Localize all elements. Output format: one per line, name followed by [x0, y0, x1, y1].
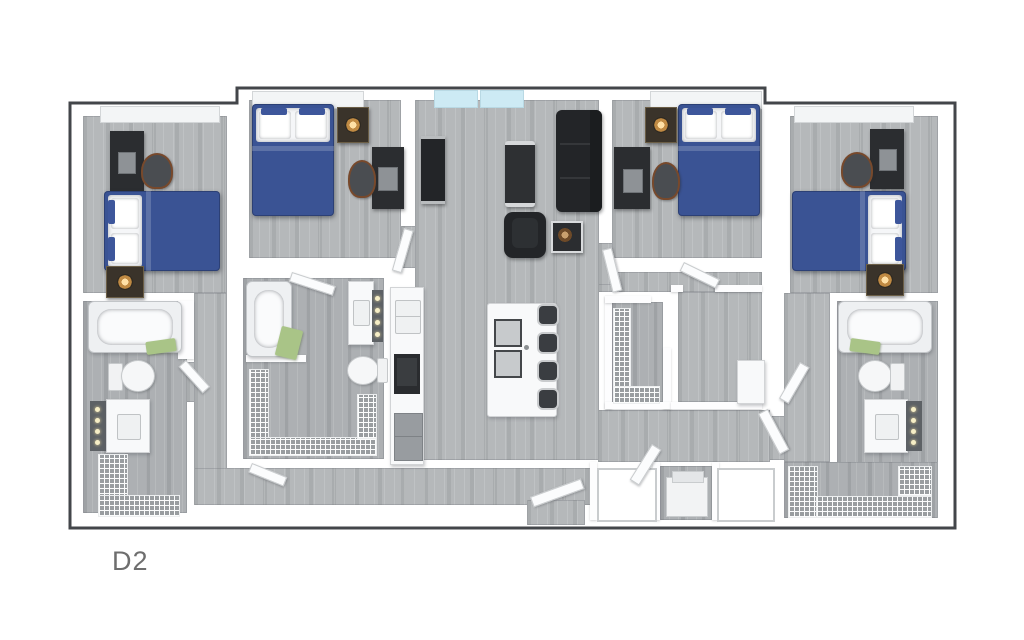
vanity-light [95, 407, 100, 412]
bathroom-2-toilet-tank [377, 358, 388, 383]
living-room-window-right [480, 90, 524, 108]
closet-4-wire-shelf-b [816, 496, 932, 518]
kitchen-counter [390, 287, 424, 465]
closet-4-wire-shelf-c [898, 466, 932, 496]
sink-divider [396, 316, 420, 317]
bar-stool [539, 306, 557, 324]
vanity-light [911, 407, 916, 412]
armchair [504, 212, 546, 258]
bedroom-4-desk-chair [841, 152, 873, 188]
bedroom-1-bed [104, 191, 220, 271]
accent-pillow [687, 108, 713, 115]
bedroom-4-lamp [877, 272, 893, 288]
bathroom-2-wire-shelf-c [357, 394, 377, 439]
bedroom-2-laptop [378, 167, 398, 191]
duvet-fold [678, 146, 760, 151]
armchair-seat [512, 218, 538, 248]
bathroom-2-wire-shelf-b [249, 437, 377, 456]
vanity-light [375, 320, 380, 325]
laundry-dryer [717, 468, 775, 522]
vanity-light [95, 418, 100, 423]
pillow [259, 111, 291, 139]
bedroom-3-bed [678, 104, 760, 216]
vanity-light [375, 332, 380, 337]
accent-pillow [261, 108, 287, 115]
tv-console [421, 136, 445, 204]
kitchen-range [394, 354, 420, 394]
cooktop-burner [494, 319, 522, 347]
bathroom-1-wire-shelf-a [98, 454, 128, 500]
bathroom-2-wire-shelf-a [249, 369, 269, 439]
pillow [111, 198, 139, 229]
vanity-sink [353, 300, 370, 326]
stacked-unit-top [672, 471, 704, 483]
vanity-light [375, 296, 380, 301]
bar-stool [539, 390, 557, 408]
bedroom-2-lamp [345, 117, 361, 133]
bedroom-4-desk [870, 129, 904, 189]
sofa-cushion-line [560, 143, 590, 145]
bathroom-4-vanity-cabinet [864, 399, 908, 453]
bedroom-3-nightstand [645, 107, 677, 143]
bed-pillow-zone [256, 108, 330, 142]
laundry-wall-a [590, 462, 597, 520]
pillow [295, 111, 327, 139]
closet-3-wall-top [605, 296, 651, 303]
bathroom-2-vanity-lights-panel [372, 290, 383, 342]
bathroom-4-toilet-tank [890, 363, 905, 391]
bar-stool [539, 362, 557, 380]
laundry-washer [597, 468, 657, 522]
accent-pillow [895, 200, 902, 224]
closet-3-wire-shelf-b [613, 386, 660, 404]
bed-pillow-zone [682, 108, 756, 142]
duvet-fold [252, 146, 334, 151]
vanity-light [95, 440, 100, 445]
bed-pillow-zone [868, 195, 902, 267]
kitchen-refrigerator [394, 413, 423, 461]
sofa-cushion-line [560, 177, 590, 179]
bedroom-1-desk-chair [141, 153, 173, 189]
bedroom-3-desk-chair [652, 162, 680, 200]
coffee-table [505, 141, 535, 207]
pillow [721, 111, 753, 139]
closet-4-wire-shelf-a [788, 466, 818, 518]
laundry-stacked-unit [666, 477, 708, 517]
sofa-backrest [590, 110, 602, 212]
bedroom-4-nightstand [866, 264, 904, 296]
vanity-light [375, 308, 380, 313]
bathroom-1-toilet [121, 360, 155, 392]
bathroom-1-vanity-lights-panel [90, 401, 106, 451]
bathroom-1-wire-shelf-b [98, 495, 180, 517]
accent-pillow [108, 237, 115, 261]
accent-pillow [299, 108, 325, 115]
vanity-sink [117, 414, 141, 440]
vanity-light [95, 429, 100, 434]
accent-pillow [895, 237, 902, 261]
bedroom-2-nightstand [337, 107, 369, 143]
kitchen-sink [395, 300, 421, 334]
bedroom-2-desk [372, 147, 404, 209]
flex-room-3-cabinet [737, 360, 765, 404]
bathroom-1-vanity-cabinet [106, 399, 150, 453]
accent-pillow [725, 108, 751, 115]
closet-3-wall-right [663, 348, 671, 409]
bathroom-4-toilet [858, 360, 892, 392]
closet-3-wall-left [605, 296, 612, 409]
bedroom-1-window [100, 106, 220, 123]
bedroom-1-desk [110, 131, 144, 191]
range-top [397, 358, 417, 386]
bedroom-4-monitor [879, 149, 897, 171]
duvet-fold [146, 191, 151, 271]
vanity-light [911, 440, 916, 445]
flex-room-3-wall-top-b [715, 285, 762, 292]
bathroom-2-toilet [347, 356, 379, 385]
bedroom-3-lamp [653, 117, 669, 133]
duvet-fold [860, 191, 865, 271]
bedroom-1-lamp [117, 274, 133, 290]
cooktop-burner [494, 350, 522, 378]
fridge-divider [395, 436, 422, 437]
bedroom-3-desk [614, 147, 650, 209]
closet-3-wire-shelf-a [613, 308, 631, 388]
bedroom-4-window [794, 106, 914, 123]
corridor-right-floor [598, 410, 770, 462]
vanity-light [911, 418, 916, 423]
plan-label: D2 [112, 546, 149, 577]
accent-pillow [108, 200, 115, 224]
bedroom-2-desk-chair [348, 160, 376, 198]
vanity-light [911, 429, 916, 434]
pillow [685, 111, 717, 139]
cooktop-knob [524, 345, 529, 350]
bed-pillow-zone [108, 195, 142, 267]
bathroom-4-vanity-lights-panel [906, 401, 922, 451]
bedroom-3-monitor [623, 169, 643, 193]
bedroom-2-bed [252, 104, 334, 216]
bar-stool [539, 334, 557, 352]
bedroom-4-bed [792, 191, 906, 271]
bedroom-1-monitor [118, 152, 136, 174]
side-table [551, 221, 583, 253]
bedroom-1-nightstand [106, 266, 144, 298]
floor-plan-canvas: D2 [0, 0, 1024, 640]
vanity-sink [875, 414, 899, 440]
side-table-bowl [558, 228, 572, 242]
sofa [556, 110, 602, 212]
pillow [111, 233, 139, 264]
flex-room-3-wall-top-a [671, 285, 683, 292]
bathroom-2-vanity-cabinet [348, 281, 374, 345]
living-room-window-left [434, 90, 478, 108]
